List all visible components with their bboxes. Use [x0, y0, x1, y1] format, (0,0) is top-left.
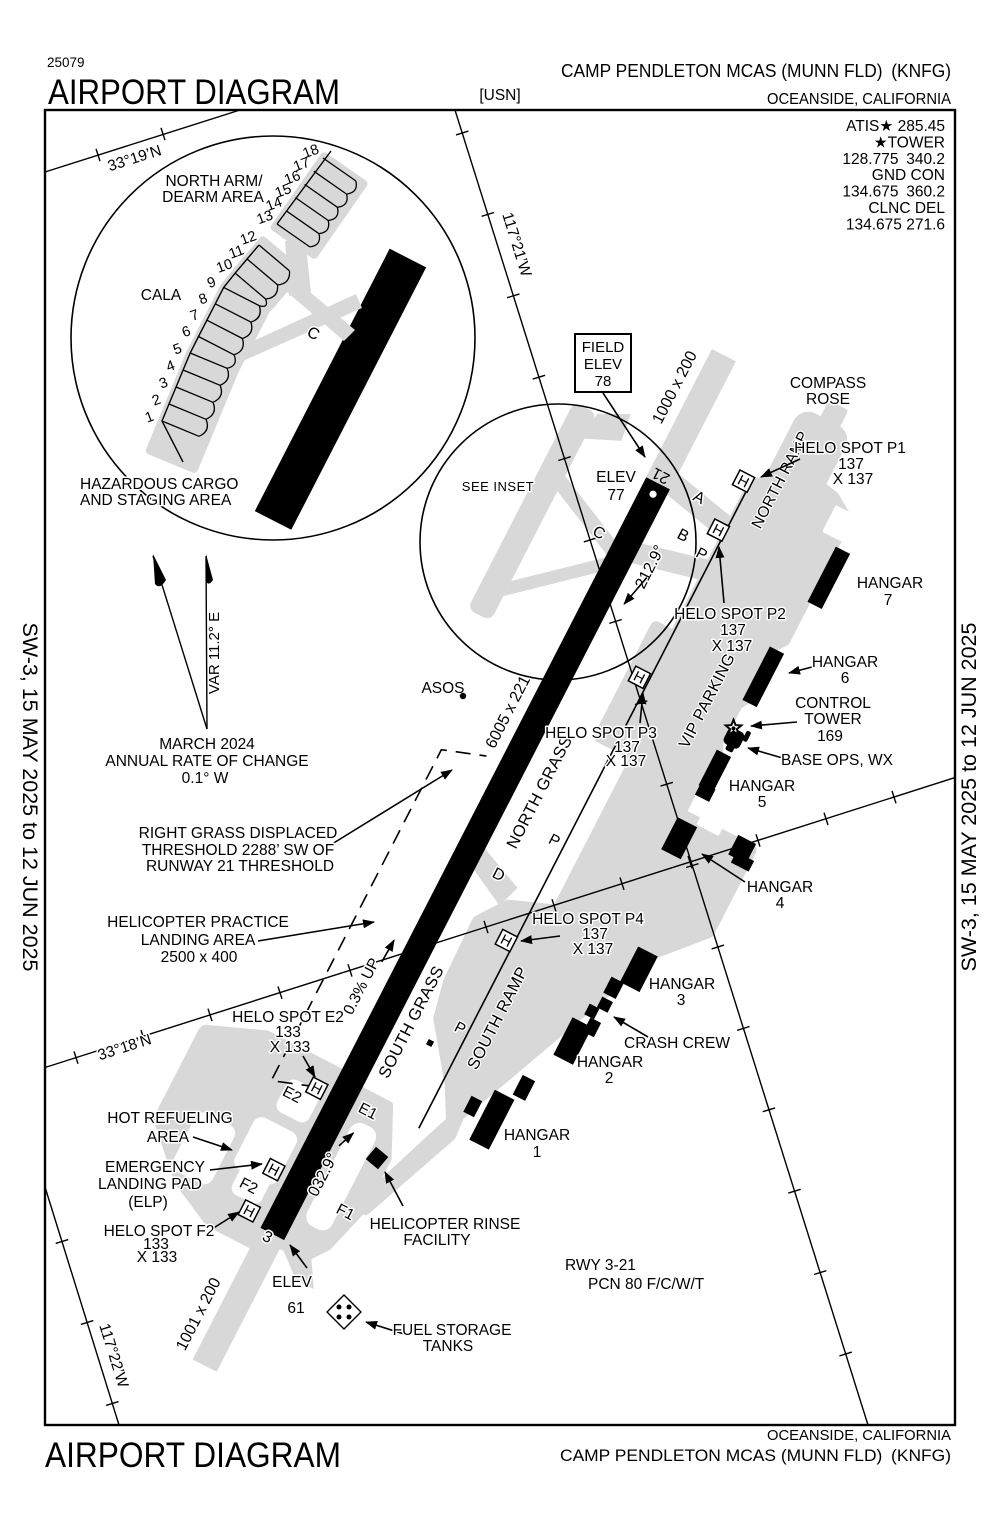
- svg-text:HELO SPOT P3: HELO SPOT P3: [545, 725, 657, 742]
- svg-text:RWY 3-21: RWY 3-21: [565, 1257, 636, 1274]
- svg-text:0.1° W: 0.1° W: [182, 770, 229, 787]
- svg-text:DEARM AREA: DEARM AREA: [162, 189, 264, 206]
- svg-text:134.675 271.6: 134.675 271.6: [846, 216, 945, 233]
- svg-text:7: 7: [884, 592, 893, 609]
- svg-text:1: 1: [533, 1144, 542, 1161]
- svg-text:CONTROL: CONTROL: [795, 695, 871, 712]
- svg-text:BASE OPS, WX: BASE OPS, WX: [781, 752, 894, 769]
- svg-text:AIRPORT DIAGRAM: AIRPORT DIAGRAM: [45, 1436, 341, 1475]
- svg-text:EMERGENCY: EMERGENCY: [105, 1159, 205, 1176]
- svg-text:SW-3, 15 MAY 2025 to 12 JUN 20: SW-3, 15 MAY 2025 to 12 JUN 2025: [957, 622, 981, 971]
- svg-text:GND CON: GND CON: [872, 167, 945, 184]
- svg-text:FUEL STORAGE: FUEL STORAGE: [393, 1322, 512, 1339]
- svg-text:THRESHOLD 2288’ SW OF: THRESHOLD 2288’ SW OF: [142, 842, 334, 859]
- svg-text:NORTH ARM/: NORTH ARM/: [165, 173, 263, 190]
- svg-text:FACILITY: FACILITY: [403, 1232, 470, 1249]
- svg-text:HANGAR: HANGAR: [747, 879, 813, 896]
- svg-text:ELEV: ELEV: [272, 1274, 312, 1291]
- svg-text:CAMP PENDLETON MCAS (MUNN FLD): CAMP PENDLETON MCAS (MUNN FLD) (KNFG): [561, 61, 951, 81]
- svg-text:ASOS: ASOS: [421, 680, 464, 697]
- svg-text:HANGAR: HANGAR: [729, 778, 795, 795]
- svg-text:RUNWAY 21 THRESHOLD: RUNWAY 21 THRESHOLD: [146, 858, 334, 875]
- svg-text:61: 61: [287, 1300, 304, 1317]
- svg-text:OCEANSIDE, CALIFORNIA: OCEANSIDE, CALIFORNIA: [767, 1428, 951, 1444]
- svg-text:AIRPORT DIAGRAM: AIRPORT DIAGRAM: [48, 73, 340, 112]
- svg-text:CLNC DEL: CLNC DEL: [868, 200, 945, 217]
- svg-text:169: 169: [817, 728, 843, 745]
- svg-text:X 137: X 137: [573, 941, 614, 958]
- svg-text:X 137: X 137: [833, 471, 874, 488]
- svg-text:RIGHT GRASS DISPLACED: RIGHT GRASS DISPLACED: [139, 825, 338, 842]
- svg-text:ATIS★ 285.45: ATIS★ 285.45: [846, 118, 945, 135]
- svg-text:2500 x 400: 2500 x 400: [161, 949, 238, 966]
- svg-text:78: 78: [595, 373, 612, 390]
- svg-text:HELICOPTER RINSE: HELICOPTER RINSE: [370, 1216, 521, 1233]
- svg-text:HANGAR: HANGAR: [504, 1127, 570, 1144]
- svg-text:★TOWER: ★TOWER: [874, 134, 945, 151]
- svg-text:TANKS: TANKS: [423, 1338, 474, 1355]
- svg-text:PCN 80 F/C/W/T: PCN 80 F/C/W/T: [588, 1276, 705, 1293]
- svg-text:AREA: AREA: [147, 1129, 190, 1146]
- svg-text:2: 2: [605, 1070, 614, 1087]
- svg-text:6: 6: [841, 670, 850, 687]
- svg-text:X 133: X 133: [137, 1249, 178, 1266]
- svg-text:CALA: CALA: [141, 287, 182, 304]
- svg-text:LANDING PAD: LANDING PAD: [98, 1176, 202, 1193]
- svg-text:5: 5: [758, 794, 767, 811]
- svg-text:HOT REFUELING: HOT REFUELING: [107, 1110, 232, 1127]
- svg-text:HELICOPTER PRACTICE: HELICOPTER PRACTICE: [107, 914, 289, 931]
- svg-text:HELO SPOT P1: HELO SPOT P1: [794, 440, 906, 457]
- svg-text:TOWER: TOWER: [804, 711, 861, 728]
- svg-text:VAR 11.2° E: VAR 11.2° E: [206, 612, 223, 694]
- svg-text:HANGAR: HANGAR: [857, 575, 923, 592]
- svg-text:HAZARDOUS CARGO: HAZARDOUS CARGO: [80, 476, 238, 493]
- svg-text:HANGAR: HANGAR: [577, 1054, 643, 1071]
- svg-text:ELEV: ELEV: [596, 469, 636, 486]
- svg-text:[USN]: [USN]: [479, 87, 520, 104]
- svg-text:ELEV: ELEV: [584, 356, 622, 373]
- svg-text:FIELD: FIELD: [582, 339, 625, 356]
- svg-text:X 133: X 133: [270, 1039, 311, 1056]
- svg-text:CAMP PENDLETON MCAS (MUNN FLD): CAMP PENDLETON MCAS (MUNN FLD) (KNFG): [560, 1446, 951, 1465]
- svg-text:OCEANSIDE, CALIFORNIA: OCEANSIDE, CALIFORNIA: [767, 91, 952, 108]
- svg-text:MARCH 2024: MARCH 2024: [159, 736, 255, 753]
- svg-text:HANGAR: HANGAR: [649, 976, 715, 993]
- svg-text:ANNUAL RATE OF CHANGE: ANNUAL RATE OF CHANGE: [105, 753, 308, 770]
- svg-text:CRASH CREW: CRASH CREW: [624, 1035, 730, 1052]
- svg-text:ROSE: ROSE: [806, 391, 850, 408]
- svg-text:3: 3: [677, 992, 686, 1009]
- svg-text:4: 4: [776, 895, 785, 912]
- svg-text:SEE INSET: SEE INSET: [462, 479, 534, 494]
- svg-text:HANGAR: HANGAR: [812, 654, 878, 671]
- svg-text:137: 137: [720, 622, 746, 639]
- svg-text:134.675 360.2: 134.675 360.2: [842, 184, 945, 201]
- svg-text:HELO SPOT P2: HELO SPOT P2: [674, 606, 786, 623]
- svg-text:128.775 340.2: 128.775 340.2: [842, 151, 945, 168]
- svg-text:77: 77: [607, 487, 624, 504]
- svg-text:LANDING AREA: LANDING AREA: [141, 932, 256, 949]
- svg-text:X 137: X 137: [712, 638, 753, 655]
- svg-text:SW-3, 15 MAY 2025 to 12 JUN 20: SW-3, 15 MAY 2025 to 12 JUN 2025: [18, 623, 42, 972]
- svg-text:COMPASS: COMPASS: [790, 375, 866, 392]
- svg-text:X 137: X 137: [606, 753, 647, 770]
- svg-text:AND STAGING AREA: AND STAGING AREA: [80, 492, 232, 509]
- svg-text:(ELP): (ELP): [128, 1194, 168, 1211]
- svg-text:25079: 25079: [47, 55, 85, 70]
